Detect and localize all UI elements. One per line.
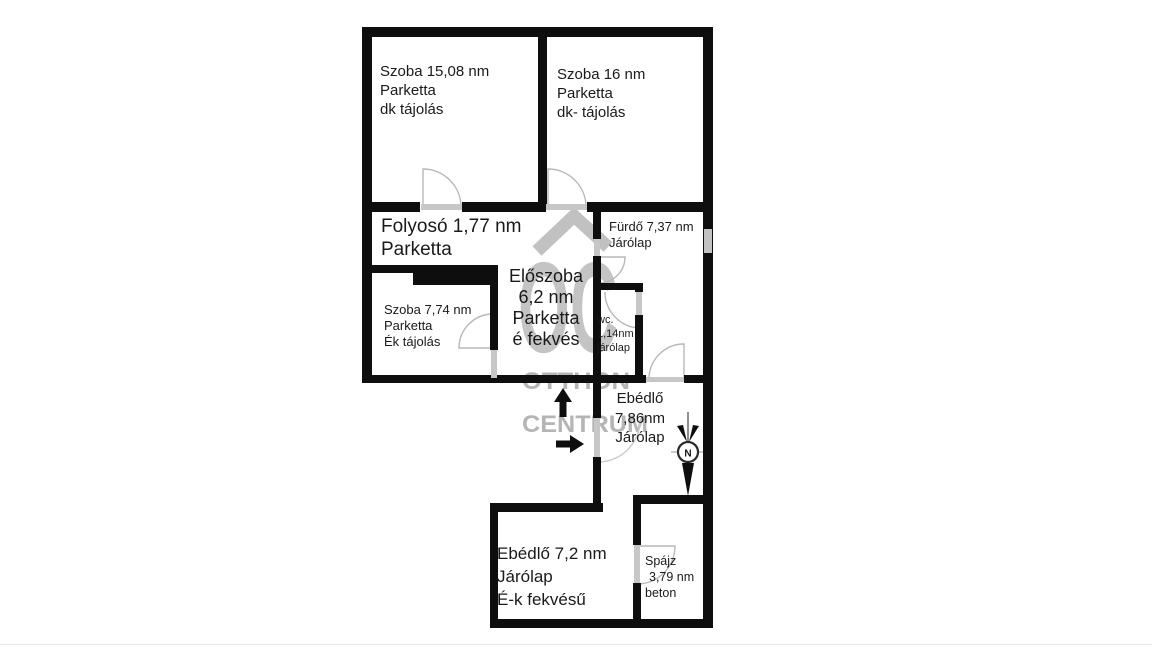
wall-spajz-left-a	[633, 495, 641, 545]
room-label-szoba-774: Szoba 7,74 nm Parketta Ék tájolás	[384, 302, 471, 350]
room-name: Szoba 16 nm	[557, 65, 645, 84]
room-floor: járólap	[597, 341, 634, 355]
room-area: 7,86nm	[594, 409, 686, 429]
room-name: Szoba 7,74 nm	[384, 302, 471, 318]
room-floor: Járólap	[497, 565, 607, 588]
wall-furdo-left-a	[593, 207, 601, 239]
door-jamb-wc	[636, 292, 642, 315]
room-floor: Parketta	[381, 239, 521, 262]
room-label-szoba-16: Szoba 16 nm Parketta dk- tájolás	[557, 65, 645, 122]
room-floor: Parketta	[557, 84, 645, 103]
room-name: Spájz	[645, 553, 694, 569]
wall-furdo-left-b	[593, 256, 601, 284]
room-label-wc: wc. 1,14nm járólap	[597, 313, 634, 355]
room-area: 3,79 nm	[649, 569, 694, 585]
room-orientation: É-k fekvésű	[497, 588, 607, 611]
room-name: Szoba 15,08 nm	[380, 62, 489, 81]
room-label-spajz: Spájz 3,79 nm beton	[645, 553, 694, 601]
room-floor: Járólap	[609, 235, 694, 251]
room-floor: Parketta	[384, 318, 471, 334]
window-furdo	[704, 229, 712, 253]
wall-spajz-top	[633, 495, 713, 504]
wall-room-divider	[538, 35, 547, 207]
wall-corridor-bottom	[362, 265, 417, 273]
door-jamb-lobby	[646, 377, 684, 382]
room-label-folyoso: Folyosó 1,77 nm Parketta	[381, 216, 521, 261]
wall-wc-right-a	[635, 283, 643, 292]
room-name: wc.	[597, 313, 634, 327]
wall-spajz-left-b	[633, 583, 641, 628]
door-arc-szoba1	[423, 169, 461, 207]
room-orientation: dk tájolás	[380, 100, 489, 119]
door-arc-lobby	[649, 344, 684, 379]
wall-lower-top	[490, 503, 603, 512]
room-label-szoba-1508: Szoba 15,08 nm Parketta dk tájolás	[380, 62, 489, 119]
room-label-ebedlo-72: Ebédlő 7,2 nm Járólap É-k fekvésű	[497, 542, 607, 611]
wall-wc-right-b	[635, 315, 643, 383]
door-arc-szoba2	[548, 169, 586, 207]
door-jamb-spajz	[634, 545, 640, 583]
room-orientation: dk- tájolás	[557, 103, 645, 122]
wall-mid-bottom-a	[362, 375, 594, 383]
floor-plan: OC OTTHON CENTRUM N	[0, 0, 1152, 648]
room-label-eloszoba: Előszoba 6,2 nm Parketta é fekvés	[498, 266, 594, 350]
wall-szoba3-right	[490, 283, 498, 350]
wall-bottom	[490, 619, 713, 628]
room-label-ebedlo-786: Ebédlő 7,86nm Járólap	[594, 389, 686, 448]
room-orientation: é fekvés	[498, 329, 594, 350]
wall-right	[703, 27, 713, 628]
wall-under-rooms-b	[462, 202, 546, 212]
room-area: 6,2 nm	[498, 287, 594, 308]
room-name: Folyosó 1,77 nm	[381, 216, 521, 239]
wall-under-rooms-a	[362, 202, 420, 212]
room-orientation: Ék tájolás	[384, 334, 471, 350]
door-jamb-szoba3	[491, 350, 497, 378]
room-floor: Parketta	[380, 81, 489, 100]
room-area: 1,14nm	[597, 327, 634, 341]
room-label-furdo: Fürdő 7,37 nm Járólap	[609, 219, 694, 251]
room-floor: Parketta	[498, 308, 594, 329]
room-floor: beton	[645, 585, 694, 601]
closet-block	[413, 265, 498, 285]
room-name: Fürdő 7,37 nm	[609, 219, 694, 235]
room-floor: Járólap	[594, 428, 686, 448]
door-jamb-szoba2	[546, 204, 587, 210]
room-name: Ebédlő 7,2 nm	[497, 542, 607, 565]
room-name: Ebédlő	[594, 389, 686, 409]
door-jamb-furdo	[594, 239, 600, 256]
room-name: Előszoba	[498, 266, 594, 287]
wall-entry-b	[593, 457, 601, 509]
door-jamb-szoba1	[421, 204, 462, 210]
compass-north-label: N	[684, 449, 691, 460]
wall-mid-bottom-c	[684, 375, 713, 383]
wall-under-rooms-c	[587, 202, 713, 212]
